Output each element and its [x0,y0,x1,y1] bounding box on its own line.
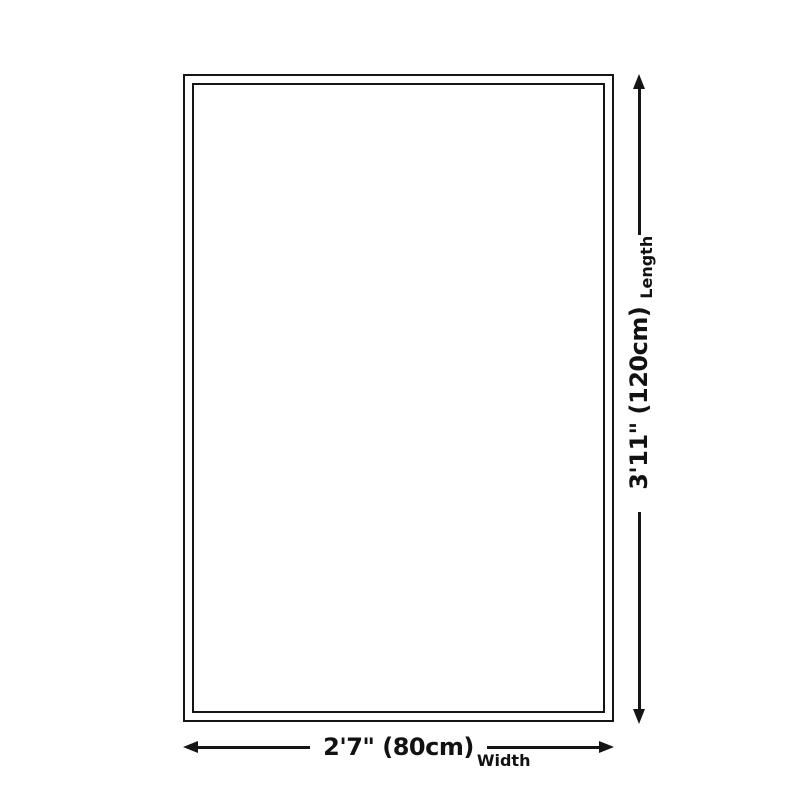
length-dimension-line-top [637,89,640,235]
width-dimension-line-left [198,746,310,749]
width-axis-label: Width [477,753,531,769]
length-dimension-arrow: 3'11" (120cm) Length [617,74,661,724]
rug-inner-outline [192,83,605,713]
arrow-left-icon [183,741,198,753]
width-value: 2'7" (80cm) [323,735,474,759]
width-dimension-arrow: 2'7" (80cm) Width [183,725,614,769]
arrow-right-icon [599,741,614,753]
arrow-up-icon [633,74,645,89]
rug-outline [183,74,614,722]
length-axis-label: Length [639,236,655,299]
rug-size-diagram: 2'7" (80cm) Width 3'11" (120cm) Length [0,0,800,800]
width-dimension-line-right: Width [487,746,599,749]
length-dimension-line-bottom [637,512,640,709]
length-value: 3'11" (120cm) [627,307,651,490]
arrow-down-icon [633,709,645,724]
